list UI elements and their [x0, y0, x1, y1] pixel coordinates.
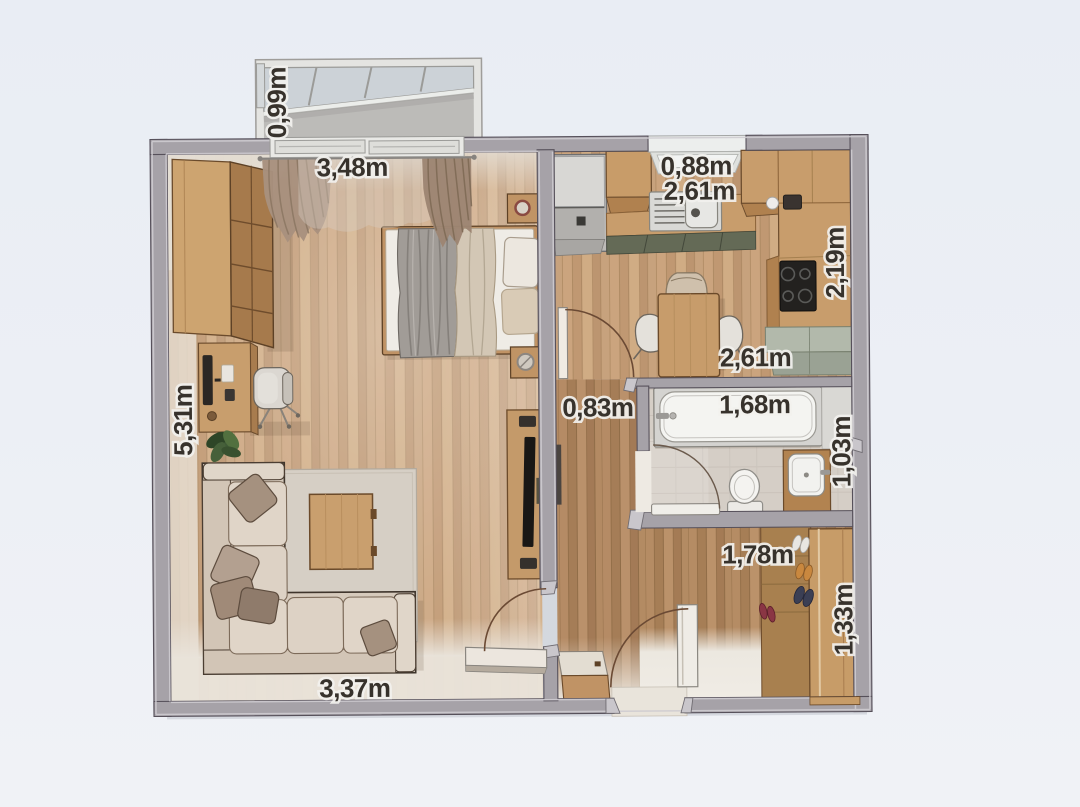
svg-text:0,83m: 0,83m [562, 392, 633, 422]
svg-text:1,03m: 1,03m [826, 416, 856, 487]
svg-text:3,37m: 3,37m [319, 673, 390, 703]
svg-text:5,31m: 5,31m [168, 385, 198, 456]
svg-text:1,33m: 1,33m [828, 584, 858, 655]
svg-text:2,19m: 2,19m [820, 227, 850, 298]
svg-text:3,48m: 3,48m [316, 152, 387, 182]
svg-text:1,68m: 1,68m [719, 389, 790, 419]
svg-text:2,61m: 2,61m [720, 342, 791, 372]
svg-text:1,78m: 1,78m [722, 539, 793, 569]
svg-text:0,99m: 0,99m [261, 67, 291, 138]
svg-text:2,61m: 2,61m [664, 175, 735, 205]
